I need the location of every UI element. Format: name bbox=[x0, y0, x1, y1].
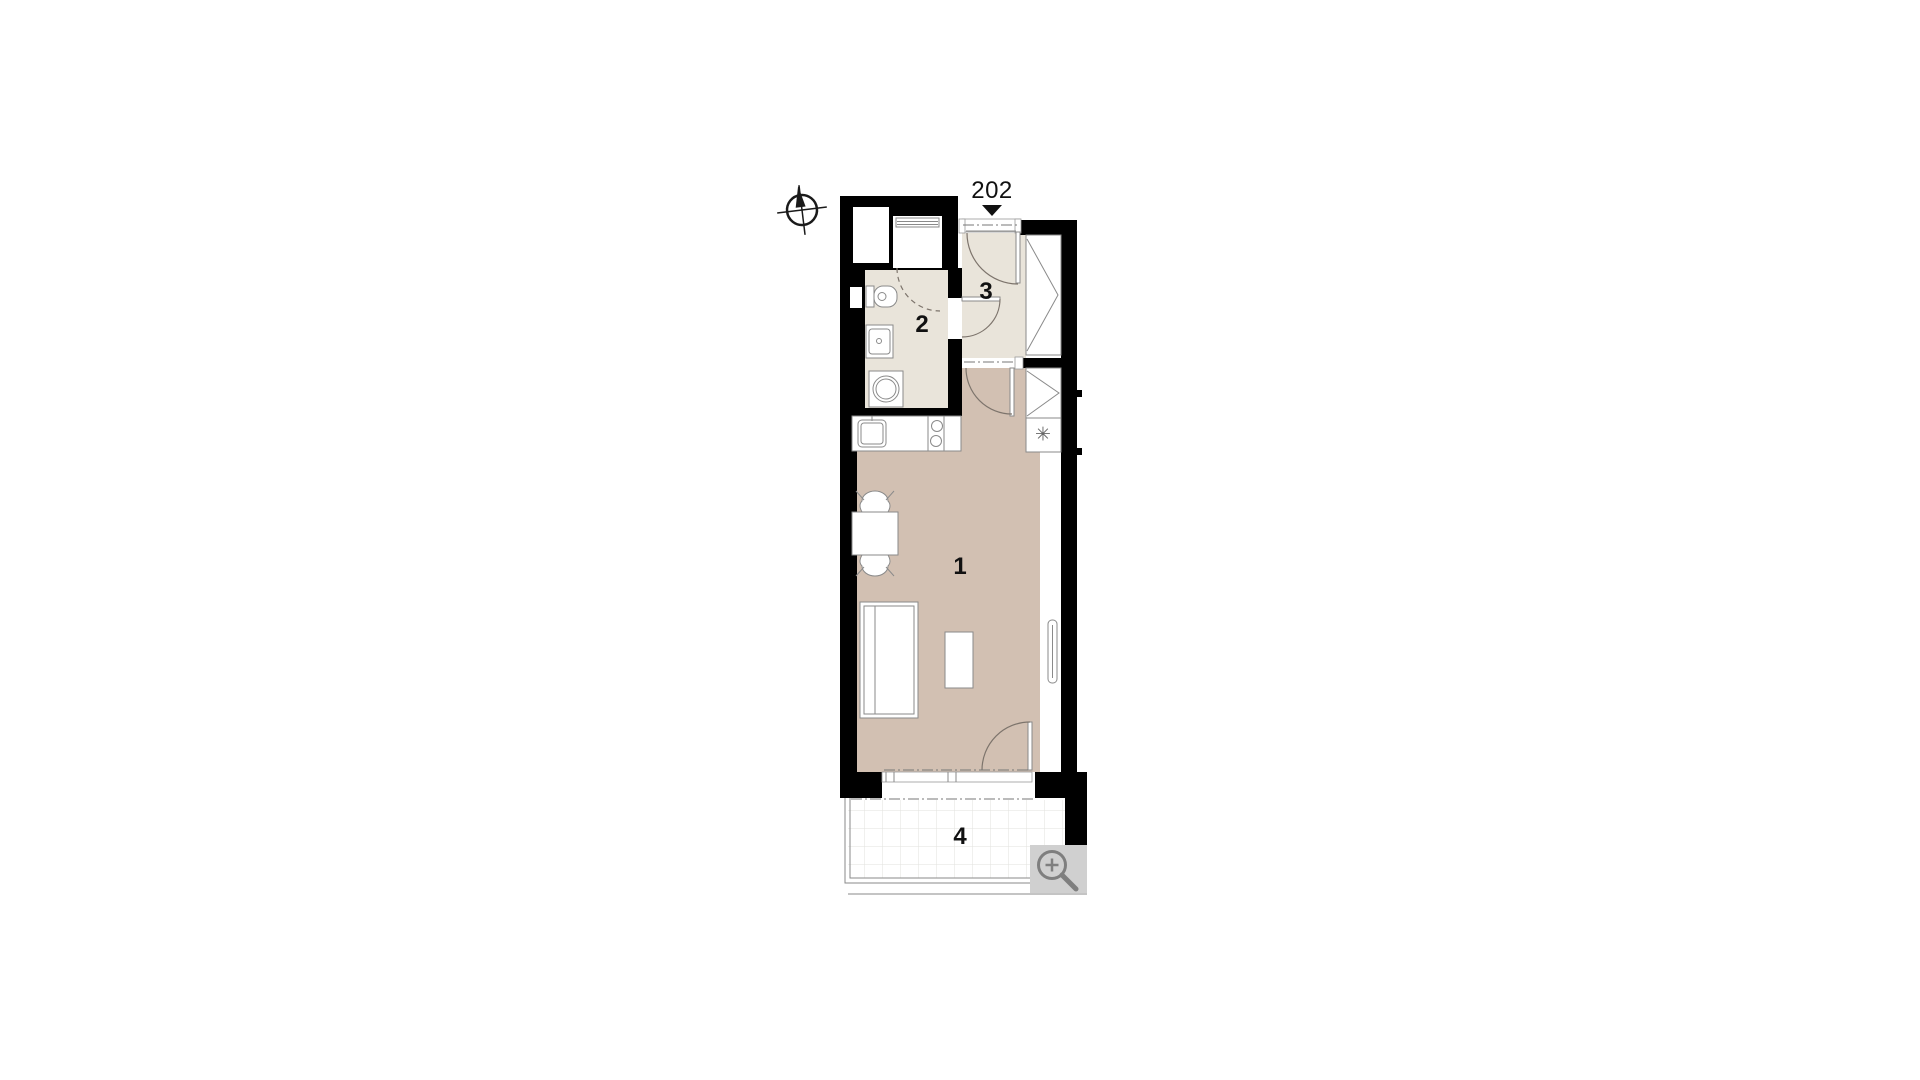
flue-symbol: ✳ bbox=[1035, 424, 1051, 447]
compass-icon bbox=[774, 182, 830, 238]
room-label-bathroom: 2 bbox=[915, 311, 928, 339]
coffee-table bbox=[945, 632, 973, 688]
entry-direction-marker bbox=[982, 205, 1002, 216]
wardrobe-small bbox=[1026, 368, 1061, 418]
wardrobe-tall bbox=[1026, 235, 1061, 355]
floorplan-page: 202 1 2 3 4 ✳ bbox=[0, 0, 1920, 1080]
magnifier-icon bbox=[1030, 845, 1087, 893]
closets bbox=[1026, 235, 1061, 452]
room-label-terrace: 4 bbox=[953, 823, 966, 851]
installation-shaft bbox=[853, 207, 889, 263]
shower-screen bbox=[896, 218, 939, 227]
room-label-living: 1 bbox=[953, 553, 966, 581]
living-room-door-leaf bbox=[1010, 368, 1014, 416]
zoom-button[interactable] bbox=[1030, 845, 1087, 893]
kitchen bbox=[852, 416, 961, 451]
wall-niche bbox=[850, 287, 862, 308]
toilet-tank bbox=[866, 286, 874, 307]
dining-table bbox=[852, 512, 898, 555]
terrace-door-leaf bbox=[1028, 722, 1032, 770]
entry-door-leaf bbox=[1016, 232, 1020, 283]
floorplan-drawing bbox=[0, 0, 1920, 1080]
room-label-hall: 3 bbox=[979, 278, 992, 306]
unit-number-label: 202 bbox=[971, 177, 1013, 205]
terrace-window-band bbox=[882, 772, 1032, 782]
bed-icon bbox=[860, 602, 918, 718]
